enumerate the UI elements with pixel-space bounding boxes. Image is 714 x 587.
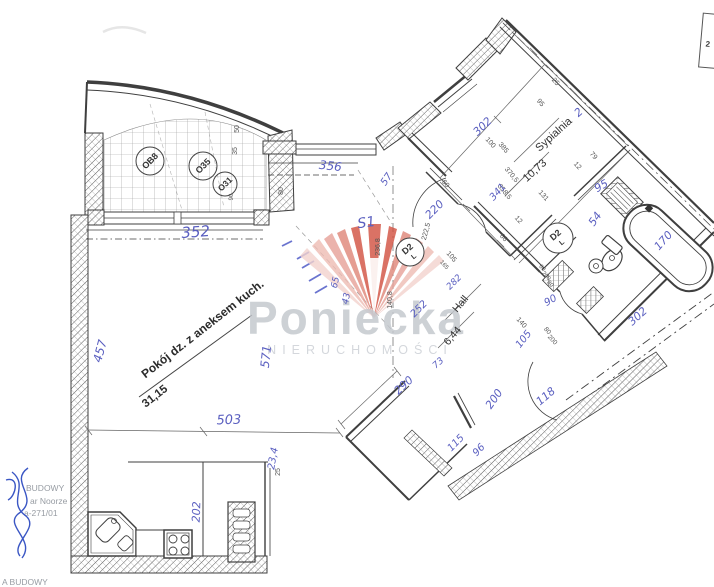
scan-smudge (103, 27, 146, 33)
hand-dim-text: 356 (318, 158, 343, 174)
door-label-hall: D2 L (396, 238, 424, 266)
hand-dim-text: 302 (626, 305, 650, 329)
print-dim-text: 140,8 (387, 291, 394, 309)
print-dim-text: 35 (232, 147, 239, 155)
hand-dim-text: 2 (572, 105, 586, 119)
wardrobe-hatch (404, 430, 452, 476)
print-dim-text: 12 (513, 215, 523, 226)
print-dim-text: 165 (438, 260, 450, 272)
stove (164, 530, 192, 558)
print-dim-text: 66 (498, 233, 508, 244)
print-dim-text: 200 (546, 334, 559, 347)
room-area-living: 31,15 (140, 383, 171, 411)
watermark-subtitle: NIERUCHOMOŚCI (267, 342, 453, 357)
print-dim-text: 222,5 (421, 222, 432, 241)
hand-dim-text: 220 (423, 198, 447, 222)
hand-dim-text: 200 (483, 387, 506, 412)
watermark: Poniecka NIERUCHOMOŚCI (247, 224, 465, 357)
hand-dim-text: 282 (445, 273, 464, 292)
floor-plan-page: Poniecka NIERUCHOMOŚCI Pokój dz. z aneks… (0, 0, 714, 587)
print-dim-text: 50 (234, 125, 241, 133)
print-dim-text: 370,5 (503, 166, 520, 184)
hand-dim-text: 54 (586, 210, 605, 229)
print-dim-text: 140 (515, 316, 528, 329)
print-dim-text: 90 (229, 193, 235, 200)
print-dim-text: 12 (572, 161, 582, 172)
svg-text:a-271/01: a-271/01 (24, 508, 58, 518)
floor-plan-drawing: Poniecka NIERUCHOMOŚCI Pokój dz. z aneks… (0, 0, 714, 587)
hand-dim-text: 341 (488, 182, 509, 204)
print-dim-text: 79 (588, 151, 598, 162)
wall-left-outer (71, 215, 88, 558)
print-dim-text: 131 (537, 189, 550, 202)
print-dim-text: 100 (484, 136, 497, 149)
drain-icon (589, 259, 603, 273)
corner-box: 2 (699, 13, 714, 71)
balcony-floor (104, 119, 266, 212)
kitchen-counter (136, 530, 164, 556)
wall-syp-sw (426, 172, 458, 204)
room-area-bedroom: 10,73 (521, 157, 549, 184)
door-label-bedroom: D2 L (543, 223, 573, 253)
print-dim-text: 95 (535, 98, 545, 109)
stamp-bottom: A BUDOWY (2, 577, 48, 587)
hand-dim-text: 73 (431, 356, 446, 371)
wall-hall-nw (408, 138, 446, 176)
watermark-brand: Poniecka (247, 292, 465, 344)
hand-dim-text: 23,4 (266, 447, 281, 471)
room-name-bedroom: Sypialnia (533, 115, 575, 154)
shaft-box (577, 287, 604, 314)
hand-dim-text: 90 (542, 293, 559, 309)
cabinet-column (228, 502, 255, 562)
hand-dim-text: 457 (90, 338, 110, 364)
hand-dim-text: S1 (357, 214, 377, 232)
print-dim-text: 385 (497, 141, 510, 154)
wall-wing-pillar (398, 102, 441, 139)
print-dim-text: 236,8 (375, 238, 382, 256)
hand-dim-text: 105 (514, 329, 534, 351)
svg-text:ar Noorze: ar Noorze (30, 496, 68, 506)
hand-dim-text: 202 (190, 501, 204, 522)
wall-balcony-left (85, 133, 103, 217)
window-north (296, 144, 376, 155)
wall-sw-hatched-band (448, 352, 667, 500)
kitchen-sink (88, 512, 136, 556)
hand-dim-text: 571 (258, 344, 274, 368)
svg-text:BUDOWY: BUDOWY (26, 483, 65, 493)
hand-dim-text: 118 (534, 385, 558, 408)
hand-dim-text: 352 (181, 222, 211, 242)
print-dim-text: 80 (278, 187, 285, 195)
hand-dim-text: 115 (446, 433, 467, 454)
hand-dim-text: 503 (216, 413, 241, 429)
stamp-left: BUDOWY ar Noorze a-271/01 (24, 483, 68, 518)
hand-dim-text: 302 (471, 115, 495, 139)
hand-dim-text: 290 (392, 374, 416, 398)
print-dim-text: 105 (445, 250, 458, 263)
hand-dim-text: 96 (471, 442, 488, 459)
